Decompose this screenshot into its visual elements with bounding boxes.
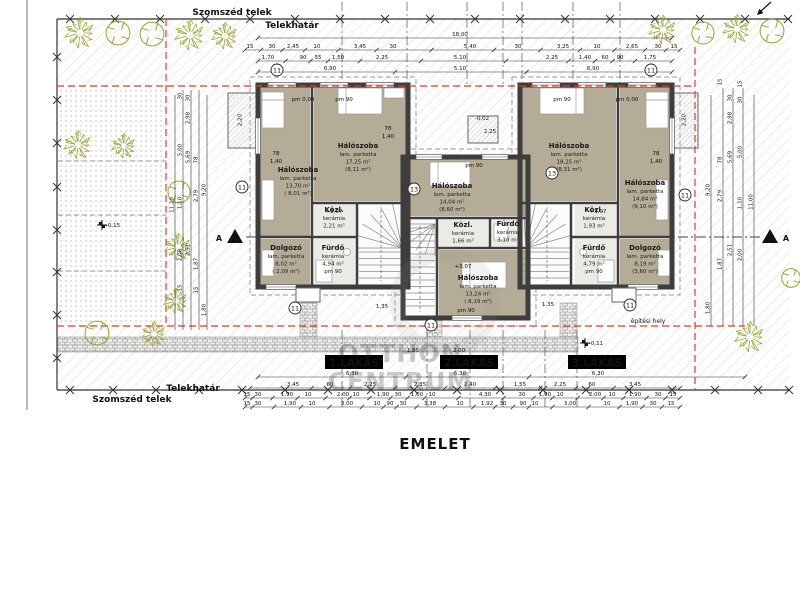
room-info: 4,79 m² — [583, 261, 605, 268]
keynote-number: 13 — [410, 185, 418, 193]
dimension-label: 1,90 — [377, 392, 390, 398]
dimension-label: 2,25 — [554, 382, 567, 388]
dimension-label: 2,98 — [728, 111, 734, 124]
room-info: 8,02 m² — [275, 261, 297, 268]
dimension-label: 15 — [670, 392, 677, 398]
dimension-label: 1,92 — [481, 401, 493, 407]
room-info: 8,19 m² — [634, 261, 656, 268]
room-info: 13,70 m² — [285, 183, 310, 190]
dimension-label: 1,40 — [579, 55, 592, 61]
dimension-label: 5,00 — [178, 143, 184, 156]
porch — [296, 288, 320, 302]
dimension-label: 3,45 — [354, 44, 367, 50]
room-info: (9,10 m²) — [632, 203, 658, 210]
dimension-label: 30 — [515, 44, 522, 50]
dimension-label: 30 — [728, 94, 734, 101]
room-info: 14,84 m² — [632, 196, 657, 203]
walkway — [58, 337, 578, 352]
dimension-label: 6,30 — [592, 371, 605, 377]
neighbor-plot-label-top: Szomszéd telek — [192, 7, 272, 18]
dimension-label: 60 — [327, 382, 334, 388]
dimension-label: 15 — [178, 284, 184, 291]
dimension-label: 10 — [557, 392, 564, 398]
dimension-label: 60 — [602, 55, 609, 61]
dimension-label: 1,55 — [514, 382, 527, 388]
walkway-stub — [560, 303, 577, 337]
room-info: (8,60 m²) — [439, 206, 465, 213]
room-info: 1,93 m² — [583, 223, 605, 230]
floor-plan-sheet: { "title": "EMELET", "labels": { "szomsz… — [0, 0, 800, 604]
keynote-number: 11 — [427, 321, 435, 329]
room-info: ( 2,09 m²) — [272, 268, 300, 275]
neighbor-plot-label-bottom: Szomszéd telek — [92, 394, 172, 405]
room-info: 18,25 m² — [556, 159, 581, 166]
spot-annotation: pm 90 — [335, 97, 353, 103]
keynote-number: 11 — [291, 304, 299, 312]
spot-annotation: 1,35 — [542, 302, 555, 308]
dimension-label: 1,80 — [202, 303, 208, 316]
plot-boundary-label-top: Telekhatár — [265, 21, 319, 31]
room-info: 14,04 m² — [439, 199, 464, 206]
room-info: 13,24 m² — [465, 291, 490, 298]
dimension-label: 15 — [738, 80, 744, 87]
room-info: lam. parketta — [340, 152, 377, 158]
dimension-label: 3,45 — [287, 382, 300, 388]
room-name: Fürdő — [322, 243, 345, 252]
room-info: 3,10 m² — [497, 237, 519, 244]
dimension-label: 2,25 — [546, 55, 559, 61]
dimension-label: 1,90 — [281, 392, 294, 398]
dimension-label: 10 — [314, 44, 321, 50]
dimension-label: 1,90 — [626, 401, 639, 407]
dimension-label: 6,90 — [324, 66, 337, 72]
dimension-label: 2,20 — [238, 113, 244, 126]
wardrobe — [262, 180, 274, 220]
room-name: Közl. — [453, 221, 472, 229]
spot-annotation: 1,40 — [650, 159, 663, 165]
dimension-label: 3,25 — [557, 44, 570, 50]
dimension-label: 5,40 — [464, 44, 477, 50]
room-name: Hálószoba — [549, 142, 590, 150]
dimension-label: 9,20 — [706, 183, 712, 196]
dimension-label: 1,87 — [718, 257, 724, 270]
room-info: lam. parketta — [434, 192, 471, 198]
dimension-label: 30 — [650, 401, 657, 407]
room-info: (8,31 m²) — [556, 166, 582, 173]
section-letter-right: A — [783, 234, 790, 243]
room-name: Hálószoba — [278, 166, 319, 174]
dimension-label: 2,35 — [414, 382, 427, 388]
room-info: pm 90 — [324, 269, 342, 275]
dimension-label: 2,00 — [738, 248, 744, 261]
dimension-label: 30 — [738, 96, 744, 103]
dimension-label: 30 — [255, 401, 262, 407]
apartment-tag: 2.LAKÁS — [444, 357, 494, 370]
dimension-label: 10 — [305, 392, 312, 398]
dimension-label: 2,51 — [186, 244, 192, 256]
room-info: kerámia — [583, 215, 605, 222]
dimension-label: 2,00 — [337, 392, 350, 398]
dimension-label: 30 — [500, 401, 507, 407]
gravel-zone — [58, 87, 166, 326]
bed — [646, 92, 668, 128]
spot-annotation: 78 — [385, 126, 392, 132]
room-info: ( 8,01 m²) — [284, 190, 312, 197]
spot-annotation: pm 0,00 — [292, 97, 315, 103]
keynote-number: 11 — [647, 66, 655, 74]
keynote-number: 11 — [626, 301, 634, 309]
dimension-label: 30 — [186, 94, 192, 101]
dimension-label: 10 — [309, 401, 316, 407]
dimension-label: 18,00 — [452, 32, 468, 38]
room-info: ( 8,19 m²) — [464, 298, 492, 305]
dimension-label: 2,40 — [464, 382, 477, 388]
dimension-label: 90 — [520, 401, 527, 407]
keynote-number: 11 — [238, 183, 246, 191]
dimension-label: 15 — [671, 44, 678, 50]
dimension-label: 30 — [269, 44, 276, 50]
washbasin — [344, 249, 351, 256]
room-info: kerámia — [497, 229, 519, 236]
dimension-label: 2,20 — [682, 113, 688, 126]
room-info: kerámia — [323, 215, 345, 222]
dimension-label: 10 — [353, 392, 360, 398]
room-name: Fürdő — [497, 219, 520, 228]
dimension-label: 5,00 — [738, 145, 744, 158]
dimension-label: 10 — [374, 401, 381, 407]
spot-annotation: pm 90 — [457, 308, 475, 314]
bed — [262, 92, 284, 128]
dimension-label: 90 — [617, 55, 624, 61]
dimension-label: 2,79 — [718, 189, 724, 202]
dimension-label: 6,90 — [587, 66, 600, 72]
dimension-label: 78 — [194, 156, 200, 163]
room-name: Dolgozó — [270, 244, 302, 252]
apartment-tag: 1.LAKÁS — [329, 357, 379, 370]
dimension-label: 2,79 — [194, 189, 200, 202]
dimension-label: 30 — [395, 392, 402, 398]
spot-annotation: 1,40 — [382, 134, 395, 140]
spot-annotation: 1,40 — [270, 159, 283, 165]
floor-plan-drawing: OTTHON CENTRUM építési hely 18,0015302,4… — [0, 0, 800, 604]
dimension-label: 5,69 — [728, 150, 734, 163]
dimension-label: 15 — [718, 78, 724, 85]
keynote-number: 11 — [273, 66, 281, 74]
spot-annotation: pm 90 — [465, 163, 483, 169]
dimension-label: 3,45 — [629, 382, 642, 388]
room-name: Dolgozó — [629, 244, 661, 252]
room-name: Fürdő — [583, 243, 606, 252]
spot-annotation: +3,07 — [326, 209, 343, 215]
keynote-number: 13 — [548, 169, 556, 177]
spot-annotation: 1,35 — [376, 304, 389, 310]
room-info: lam. parketta — [268, 254, 305, 260]
dimension-label: 2,00 — [589, 392, 602, 398]
dimension-label: 1,70 — [262, 55, 275, 61]
spot-annotation: 1,85 — [407, 348, 420, 354]
walkway-stub — [300, 303, 317, 337]
spot-annotation: pm 0,00 — [616, 97, 639, 103]
dimension-label: 4,30 — [479, 392, 492, 398]
dimension-label: 30 — [655, 44, 662, 50]
dimension-label: 5,10 — [454, 55, 467, 61]
dimension-label: 90 — [387, 401, 394, 407]
dimension-label: 30 — [255, 392, 262, 398]
wardrobe — [384, 88, 404, 98]
building-envelope-label: építési hely — [631, 318, 666, 325]
page-title: EMELET — [399, 435, 470, 453]
spot-annotation: -0,11 — [589, 341, 603, 347]
dimension-label: 11,00 — [749, 194, 755, 210]
room-info: kerámia — [583, 253, 605, 260]
room-info: kerámia — [452, 230, 474, 237]
north-arrow-icon — [757, 2, 771, 15]
dimension-label: 2,45 — [287, 44, 300, 50]
spot-annotation: 2,25 — [484, 129, 497, 135]
dimension-label: 11,20 — [170, 197, 176, 213]
dimension-label: 3,00 — [564, 401, 577, 407]
room-info: lam. parketta — [280, 176, 317, 182]
dimension-label: 30 — [178, 92, 184, 99]
room-info: 17,25 m² — [345, 159, 370, 166]
room-name: Hálószoba — [432, 182, 473, 190]
dimension-label: 1,10 — [738, 196, 744, 209]
room-info: lam. parketta — [460, 284, 497, 290]
spot-annotation: +3,07 — [590, 209, 607, 215]
dimension-label: 1,80 — [706, 301, 712, 314]
dimension-label: 1,87 — [194, 257, 200, 270]
room-name: Hálószoba — [625, 179, 666, 187]
dimension-label: 10 — [594, 44, 601, 50]
apartment-tag: 3.LAKÁS — [572, 357, 622, 370]
room-name: Hálószoba — [458, 274, 499, 282]
dimension-label: 10 — [429, 392, 436, 398]
dimension-label: 15 — [244, 392, 251, 398]
dimension-label: 30 — [519, 392, 526, 398]
dimension-label: 1,10 — [178, 196, 184, 209]
room-info: 1,66 m² — [452, 238, 474, 245]
plot-boundary-label-bottom: Telekhatár — [166, 384, 220, 394]
dimension-label: 2,51 — [728, 244, 734, 256]
dimension-label: 2,25 — [376, 55, 389, 61]
dimension-label: 9,20 — [202, 183, 208, 196]
dimension-label: 1,00 — [411, 392, 424, 398]
keynote-number: 11 — [681, 191, 689, 199]
room-info: lam. parketta — [627, 254, 664, 260]
section-letter-left: A — [216, 234, 223, 243]
dimension-label: 1,90 — [539, 392, 552, 398]
dimension-label: 30 — [390, 44, 397, 50]
dimension-label: 2,00 — [178, 248, 184, 261]
dimension-label: 78 — [718, 156, 724, 163]
dimension-label: 55 — [315, 55, 322, 61]
spot-annotation: 78 — [273, 151, 280, 157]
dimension-label: 6,30 — [454, 371, 467, 377]
spot-annotation: 2,00 — [453, 348, 466, 354]
dimension-label: 3,38 — [424, 401, 437, 407]
spot-annotation: +3,07 — [455, 264, 472, 270]
dimension-label: 15 — [194, 286, 200, 293]
dimension-label: 10 — [457, 401, 464, 407]
dimension-label: 1,75 — [644, 55, 657, 61]
room-info: 2,21 m² — [323, 223, 345, 230]
room-info: (8,11 m²) — [345, 166, 371, 173]
spot-annotation: -0,15 — [106, 223, 121, 229]
dimension-label: 6,30 — [346, 371, 359, 377]
dimension-label: 5,69 — [186, 150, 192, 163]
spot-annotation: -0,02 — [475, 116, 489, 122]
dimension-label: 2,98 — [186, 111, 192, 124]
room-info: lam. parketta — [627, 189, 664, 195]
spot-annotation: pm 90 — [553, 97, 571, 103]
dimension-label: 10 — [609, 392, 616, 398]
spot-annotation: 78 — [653, 151, 660, 157]
dimension-label: 2,65 — [626, 44, 639, 50]
dimension-label: 1,90 — [284, 401, 297, 407]
dimension-label: 15 — [247, 44, 254, 50]
room-info: kerámia — [322, 253, 344, 260]
dimension-label: 90 — [300, 55, 307, 61]
dimension-label: 15 — [668, 401, 675, 407]
room-info: pm 90 — [585, 269, 603, 275]
dimension-label: 1,50 — [332, 55, 345, 61]
dimension-label: 1,90 — [629, 392, 642, 398]
dimension-label: 15 — [244, 401, 251, 407]
room-info: (3,60 m²) — [632, 268, 658, 275]
dimension-label: 60 — [589, 382, 596, 388]
dimension-label: 2,25 — [364, 382, 377, 388]
dimension-label: 3,00 — [341, 401, 354, 407]
dimension-label: 10 — [532, 401, 539, 407]
room-name: Hálószoba — [338, 142, 379, 150]
dimension-label: 30 — [400, 401, 407, 407]
dimension-label: 5,10 — [454, 66, 467, 72]
dimension-label: 10 — [604, 401, 611, 407]
dimension-label: 30 — [655, 392, 662, 398]
room-info: lam. parketta — [551, 152, 588, 158]
room-info: 4,94 m² — [322, 261, 344, 268]
